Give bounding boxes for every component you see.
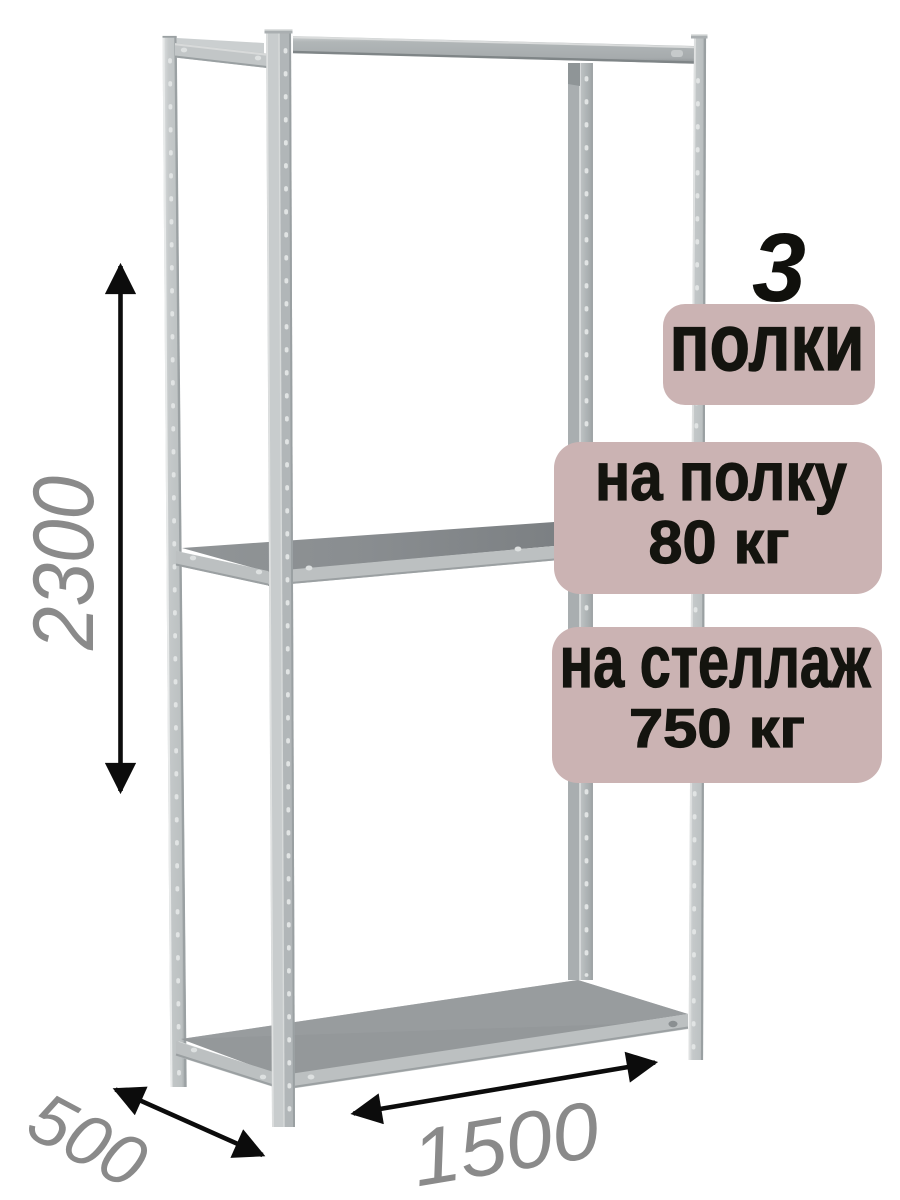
svg-text:на стеллаж: на стеллаж: [560, 622, 872, 703]
svg-text:на полку: на полку: [595, 438, 847, 515]
svg-text:80 кг: 80 кг: [649, 509, 790, 576]
svg-text:2300: 2300: [16, 476, 112, 651]
svg-text:750 кг: 750 кг: [629, 697, 805, 759]
svg-text:полки: полки: [670, 298, 865, 388]
